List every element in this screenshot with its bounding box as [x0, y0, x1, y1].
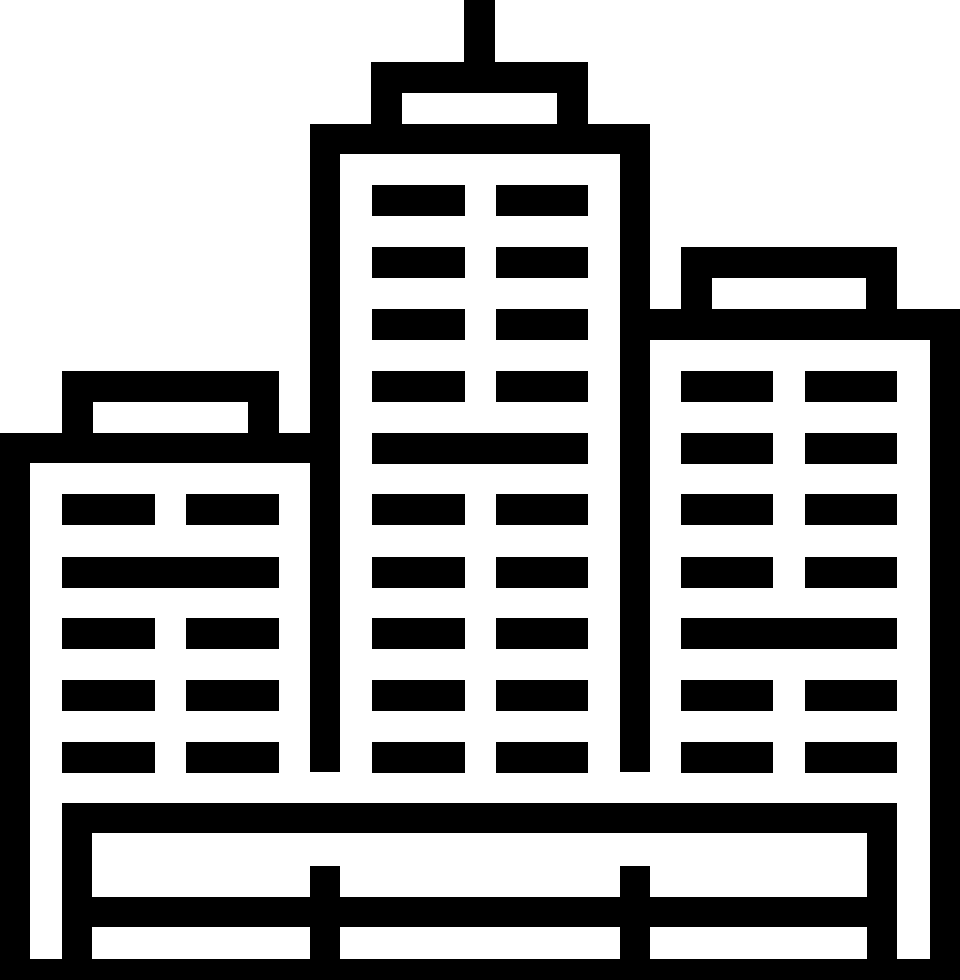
base-fence: [0, 803, 960, 980]
center-building-roof-box: [371, 62, 588, 124]
city-buildings-icon: [0, 0, 960, 980]
right-building-windows: [681, 371, 897, 773]
left-building-windows: [62, 494, 279, 773]
antenna: [464, 0, 495, 62]
center-building-windows: [372, 185, 588, 773]
left-building-roof-box: [62, 371, 279, 433]
right-building-roof-box: [681, 247, 897, 309]
icon-canvas: [0, 0, 960, 980]
